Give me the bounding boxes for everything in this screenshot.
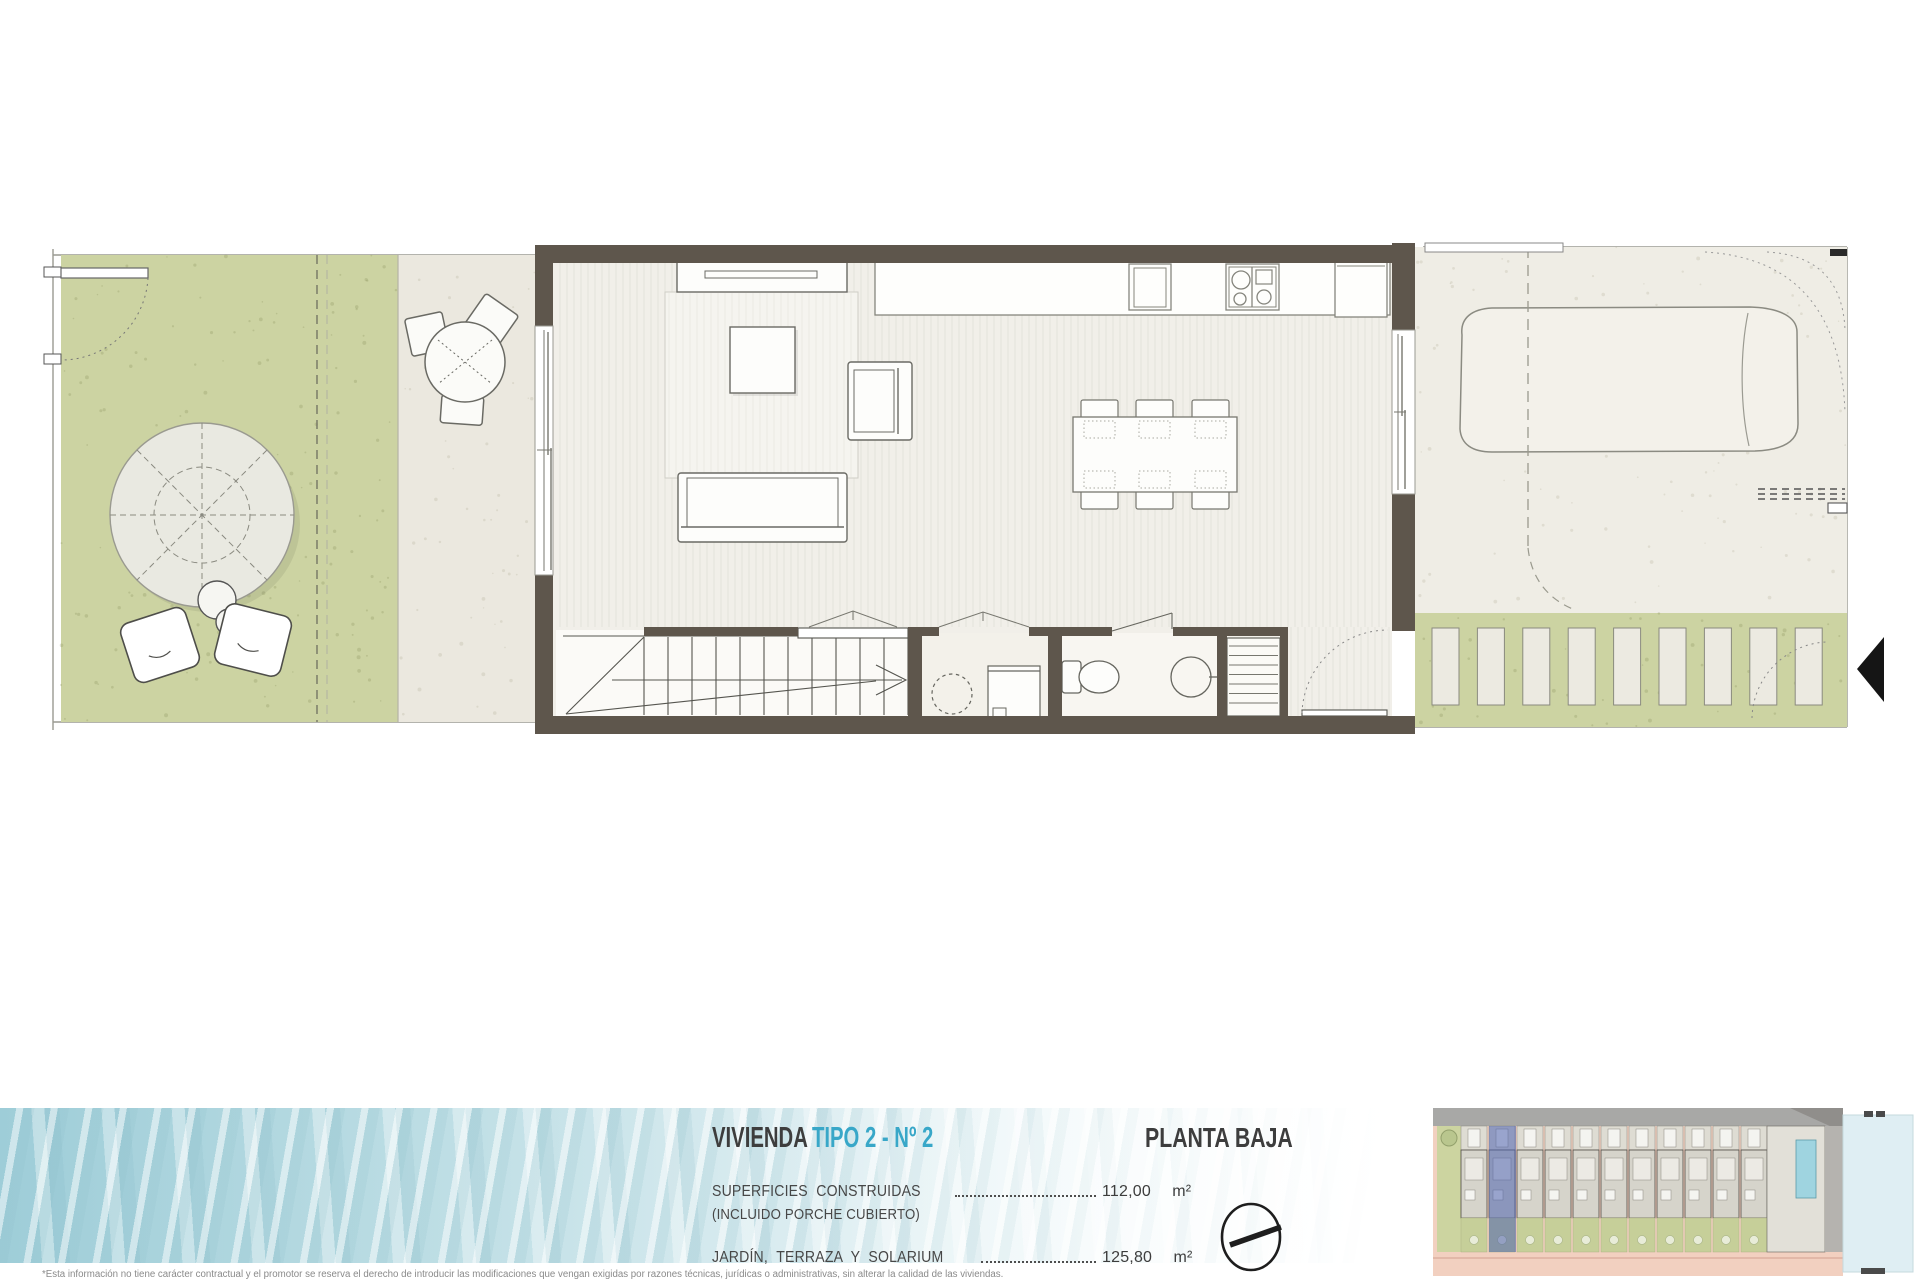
disclaimer-text: *Esta información no tiene carácter cont… [42, 1269, 1594, 1280]
drawing-title: VIVIENDA TIPO 2 - Nº 2 [712, 1122, 1028, 1155]
plan-sheet: VIVIENDA TIPO 2 - Nº 2 PLANTA BAJA SUPER… [0, 0, 1920, 1280]
area-row-built: SUPERFICIES CONSTRUIDAS 112,00 m² [712, 1183, 1198, 1201]
area-row-built-note: (INCLUIDO PORCHE CUBIERTO) [712, 1206, 920, 1223]
dotted-leader [955, 1194, 1096, 1197]
dwelling-type: TIPO 2 - Nº 2 [812, 1122, 933, 1154]
area-row-garden: JARDÍN, TERRAZA Y SOLARIUM 125,80 m² [712, 1249, 1198, 1267]
dotted-leader [981, 1260, 1096, 1263]
dwelling-label: VIVIENDA [712, 1122, 808, 1154]
floor-label: PLANTA BAJA [1145, 1122, 1339, 1154]
north-arrow-icon [1220, 1201, 1284, 1273]
